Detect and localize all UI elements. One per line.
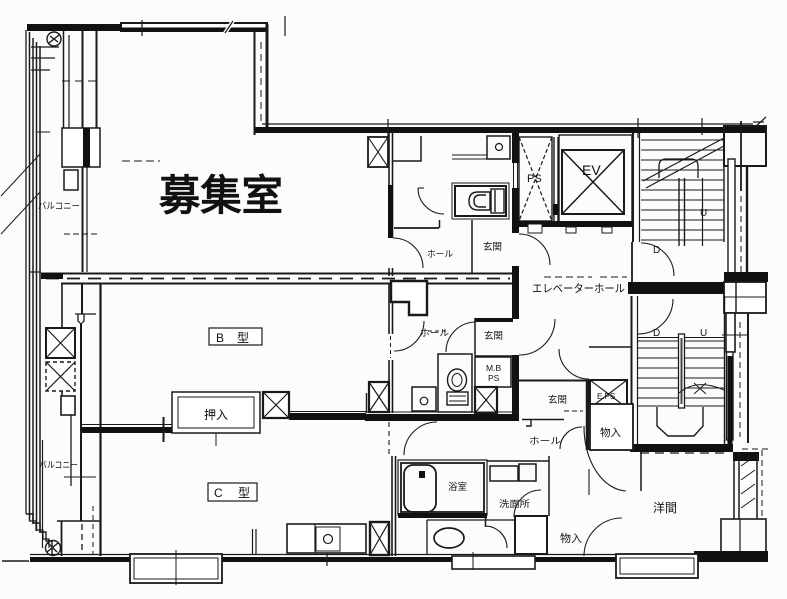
svg-text:募集室: 募集室 (158, 172, 283, 219)
svg-text:C: C (214, 486, 223, 500)
svg-text:物入: 物入 (600, 426, 621, 439)
svg-text:洗面所: 洗面所 (499, 498, 530, 509)
svg-text:ホール: ホール (420, 328, 449, 338)
svg-text:物入: 物入 (560, 531, 582, 545)
svg-text:U: U (700, 328, 707, 339)
svg-text:ホール: ホール (427, 249, 453, 259)
svg-text:M.B: M.B (486, 363, 501, 373)
svg-text:玄関: 玄関 (484, 330, 503, 342)
svg-text:押入: 押入 (204, 408, 228, 422)
svg-text:E.PS: E.PS (597, 392, 615, 401)
svg-text:バルコニー: バルコニー (39, 460, 78, 470)
svg-text:B: B (216, 331, 224, 345)
svg-text:PS: PS (527, 173, 542, 185)
svg-text:エレベーターホール: エレベーターホール (532, 282, 625, 295)
svg-text:型: 型 (238, 486, 250, 500)
svg-text:バルコニー: バルコニー (38, 201, 80, 211)
svg-text:EV: EV (582, 162, 601, 178)
svg-text:浴室: 浴室 (448, 481, 467, 493)
svg-text:型: 型 (237, 331, 249, 345)
svg-text:D: D (653, 328, 660, 339)
svg-text:PS: PS (488, 373, 500, 383)
svg-text:洋間: 洋間 (653, 500, 677, 515)
svg-text:ホール: ホール (529, 436, 561, 446)
svg-text:U: U (700, 208, 707, 219)
svg-text:玄関: 玄関 (548, 394, 567, 406)
svg-text:玄関: 玄関 (483, 241, 502, 253)
